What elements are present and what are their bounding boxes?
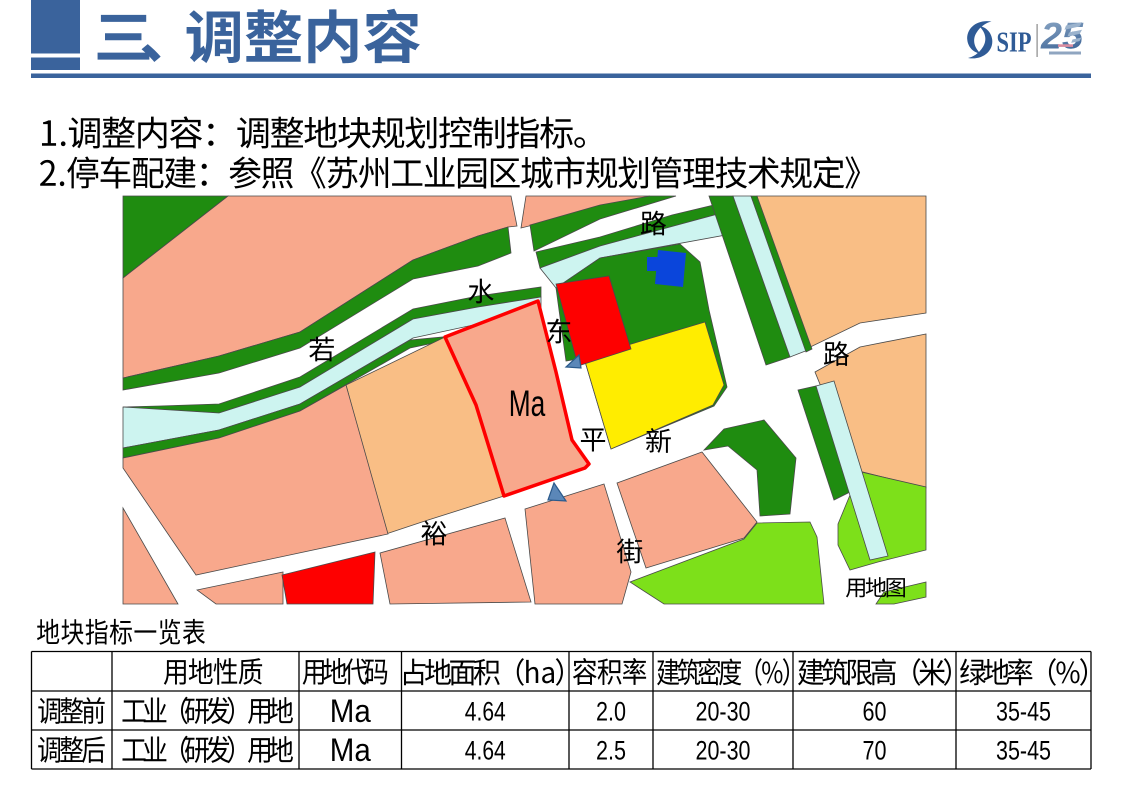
svg-text:20-30: 20-30 (696, 735, 751, 765)
svg-text:20-30: 20-30 (696, 696, 751, 726)
svg-text:4.64: 4.64 (465, 696, 506, 726)
svg-text:60: 60 (863, 696, 887, 726)
svg-text:25: 25 (1040, 16, 1084, 57)
svg-text:35-45: 35-45 (996, 696, 1051, 726)
svg-text:Ma: Ma (509, 383, 546, 424)
svg-text:4.64: 4.64 (465, 735, 506, 765)
svg-text:35-45: 35-45 (996, 735, 1051, 765)
svg-text:70: 70 (863, 735, 887, 765)
svg-text:Ma: Ma (330, 693, 371, 729)
svg-text:SIP: SIP (997, 27, 1032, 59)
svg-text:Ma: Ma (330, 732, 371, 768)
svg-text:2.5: 2.5 (596, 735, 626, 765)
svg-text:2.0: 2.0 (596, 696, 626, 726)
